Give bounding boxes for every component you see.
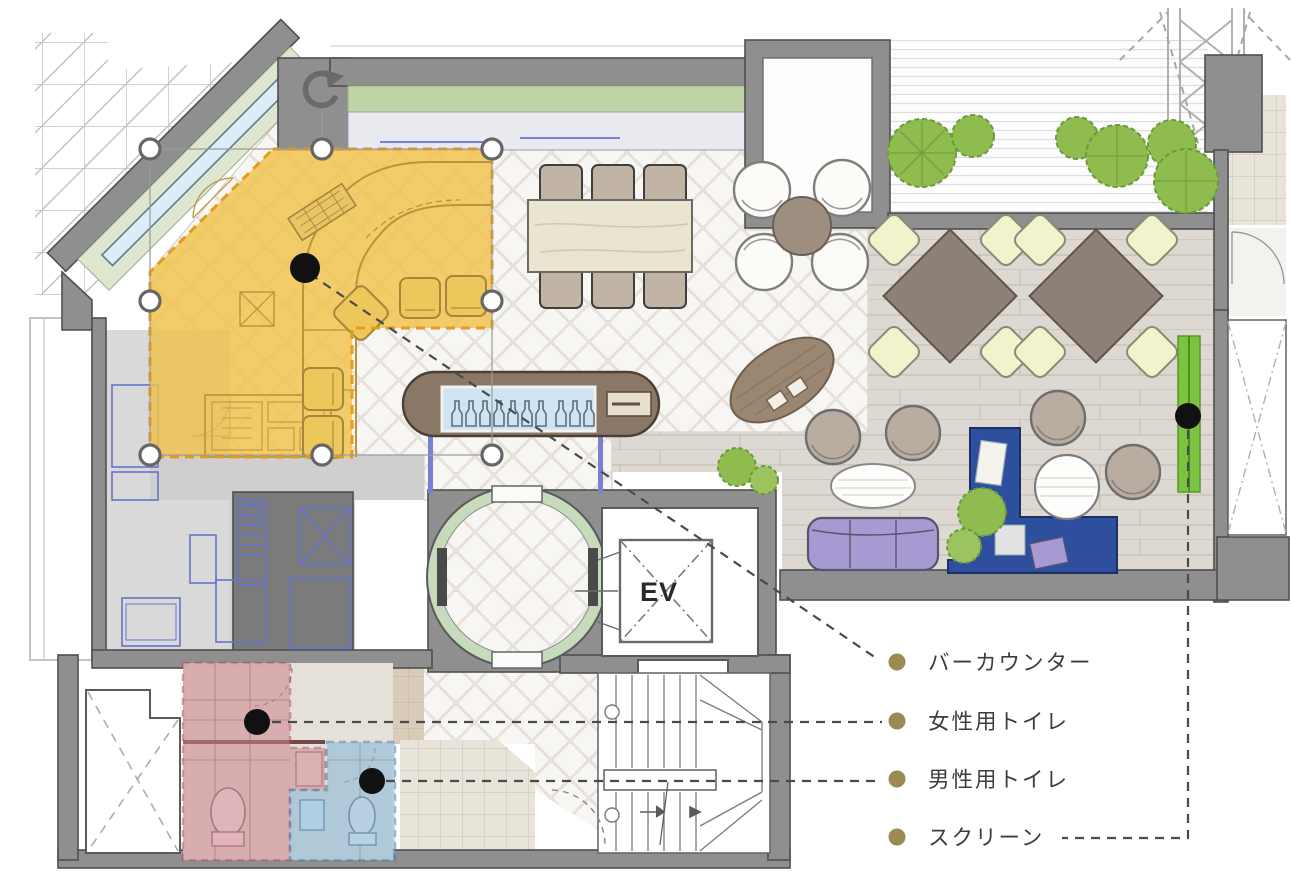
legend-item-screen: スクリーン	[889, 826, 1045, 850]
floor-plan-svg: EV	[0, 0, 1292, 892]
beige-room-floor	[400, 740, 535, 858]
lower-corridor-floor2	[535, 744, 598, 830]
right-door-room	[1228, 228, 1286, 316]
handle-top-center[interactable]	[312, 139, 332, 159]
handle-top-left[interactable]	[140, 139, 160, 159]
handle-bottom-left[interactable]	[140, 445, 160, 465]
legend-item-mens-toilet: 男性用トイレ	[889, 768, 1070, 792]
left-outer-skin	[30, 318, 92, 660]
handle-bottom-center[interactable]	[312, 445, 332, 465]
bottom-left-wall	[58, 655, 78, 860]
terrace-corner-block	[1205, 55, 1262, 152]
handle-bottom-right[interactable]	[482, 445, 502, 465]
marker-bar-counter[interactable]	[290, 253, 320, 283]
legend-bullet	[889, 713, 906, 730]
stair-right-wall	[768, 655, 790, 860]
plank-band	[612, 432, 784, 472]
legend-bullet	[889, 771, 906, 788]
elevator-label: EV	[640, 577, 678, 607]
lower-corridor-floor	[424, 668, 598, 744]
legend-item-womens-toilet: 女性用トイレ	[889, 710, 1070, 734]
oval-rug	[831, 464, 915, 508]
void-shaft	[86, 690, 180, 853]
bottle-counter	[403, 372, 659, 436]
legend-bullet	[889, 829, 906, 846]
vestibule	[427, 486, 607, 668]
top-wall	[330, 58, 800, 86]
legend-label: スクリーン	[928, 826, 1044, 850]
handle-top-right[interactable]	[482, 139, 502, 159]
back-counter-band	[348, 112, 796, 150]
legend-label: バーカウンター	[928, 651, 1093, 675]
marker-screen[interactable]	[1175, 403, 1201, 429]
marker-mens-toilet[interactable]	[359, 768, 385, 794]
top-hedge	[348, 86, 796, 112]
marker-womens-toilet[interactable]	[244, 709, 270, 735]
legend-label: 男性用トイレ	[928, 768, 1069, 792]
dining-table-long	[528, 165, 692, 308]
top-strip	[330, 40, 800, 60]
legend: バーカウンター 女性用トイレ 男性用トイレ スクリーン	[889, 651, 1093, 850]
dark-core-block	[233, 492, 353, 655]
left-wall	[92, 318, 106, 658]
lounge-bottom-wall	[780, 570, 1228, 600]
lounge-corner-block	[1217, 537, 1289, 600]
handle-mid-right[interactable]	[482, 291, 502, 311]
handle-mid-left[interactable]	[140, 291, 160, 311]
floor-plan-canvas: EV	[0, 0, 1292, 892]
legend-label: 女性用トイレ	[928, 710, 1069, 734]
purple-sofa	[808, 518, 938, 570]
legend-item-bar-counter: バーカウンター	[889, 651, 1093, 675]
legend-bullet	[889, 654, 906, 671]
